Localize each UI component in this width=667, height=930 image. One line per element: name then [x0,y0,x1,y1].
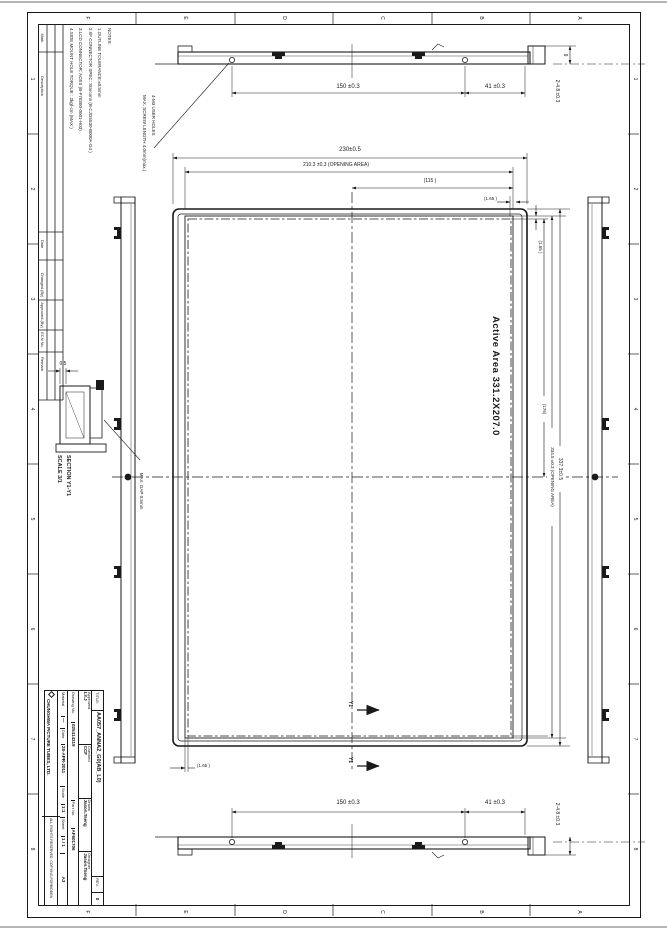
dim-top-48: 2-4.8 ±0.3 [552,68,562,114]
z-b4: B [476,907,486,917]
drawing-no-value: 025414319 [71,723,76,801]
dim-115: (115 ) [400,179,460,185]
z-b0: F [82,907,92,917]
z-t0: F [82,13,92,23]
approved-value: LY.J [83,692,88,743]
dim-165-bottom: (1.65 ) [197,763,231,768]
engineering-drawing-page: F E D C B A F E D C B A 1 2 3 4 5 6 7 8 … [0,0,667,930]
notes-line: 4.SIDE MOUNT HOLE TORQUE : 2kgf-cm (MAX.… [66,28,76,176]
revision-header-mark: Mark [37,28,47,48]
section-scale: SCALE 3/1 [54,455,63,521]
drawing-no-label: Drawing No. [71,691,75,723]
z-b2: D [279,907,289,917]
part-no-value: AF601706 [71,829,76,906]
title-label: TITLE: [92,691,103,711]
copyright-text: ALL RIGHTS RESERVED, COPYING FORBIDDEN [49,817,53,905]
z-r0: 1 [630,74,640,84]
z-b5: A [574,907,584,917]
z-l1: 2 [27,184,37,194]
rev-label: REV. [92,877,103,893]
user-holes-note: 4-M3 USER HOLES MAX. SCREW LENGTH 4.0mm(… [140,95,158,213]
drawing-title: AA057_ANNA2_G0(AB_L0) [92,711,103,877]
checked-value: CCF [83,746,88,797]
notes-line: 3.LCD CONNECTOR: ACES (B-F70300-0001-H03… [76,28,86,176]
section-cut-label-upper: Y1 [345,698,355,710]
dim-bottom-48: 2-4.8 ±0.3 [552,791,562,837]
dim-top-9: 9 [560,49,570,61]
z-b1: E [180,907,190,917]
sheet-label: Sheet [61,818,65,837]
dim-outer-height: 337.3±0.5 [555,446,565,492]
left-side-view [114,197,135,763]
date-value: 28-APR-2011 [60,745,65,787]
z-r1: 2 [630,184,640,194]
section-title: SECTION Y1-Y1 [63,455,72,521]
z-r6: 7 [630,734,640,744]
dim-bottom-41: 41 ±0.3 [465,800,525,807]
z-r2: 3 [630,294,640,304]
z-t3: C [377,13,387,23]
scale-label: Scale [61,787,65,805]
right-side-view [588,197,609,763]
z-r3: 4 [630,404,640,414]
dim-outer-width: 230±0.5 [273,147,427,154]
z-t2: D [279,13,289,23]
user-holes-note-line1: 4-M3 USER HOLES [149,95,158,213]
z-b3: C [377,907,387,917]
user-holes-note-line2: MAX. SCREW LENGTH 4.0mm(max.) [140,95,149,213]
z-r7: 8 [630,844,640,854]
dim-opening-width: 210.3 ±0.3 (OPENING AREA) [271,163,401,169]
revision-header-description: Description [37,68,47,104]
material-label: Material [61,691,65,717]
z-t5: A [574,13,584,23]
z-l0: 1 [27,74,37,84]
material-value: — [60,717,65,729]
dim-section-05: 0.5 [52,362,74,368]
z-l7: 8 [27,844,37,854]
drawn-value: Jason.Tseng [83,800,88,851]
dim-top-150: 150 ±0.3 [288,84,408,91]
section-title-block: SECTION Y1-Y1 SCALE 3/1 [54,455,72,521]
company-name: CHUNGHWA PICTURE TUBES, LTD. [46,699,51,776]
section-cut-label-lower: Y1 [345,754,355,766]
sheet-value: 1 / 1 [60,837,65,854]
z-t4: B [476,13,486,23]
rev-value: 0 [92,893,103,905]
section-detail-view [48,368,140,460]
top-side-view [154,44,645,148]
z-l6: 7 [27,734,37,744]
dim-165-top: (1.65 ) [467,196,497,201]
dim-165-right: (1.65 ) [535,232,545,262]
dim-top-41: 41 ±0.3 [465,84,525,91]
notes-block: NOTES: 1.OUTLINE TOLERANCE:±0.5mm 2.I/F … [66,28,114,176]
active-area-label: Active Area 331.2X207.0 [490,226,500,526]
z-r4: 5 [630,514,640,524]
bottom-side-view [155,808,645,858]
sheet-size: A3 [60,854,65,905]
company-logo-icon [48,691,55,698]
part-no-label: Part No. [71,801,75,829]
z-t1: E [180,13,190,23]
date-label: Date [61,729,65,745]
notes-line: 1.OUTLINE TOLERANCE:±0.5mm [95,28,105,176]
section-gap-note: MAX. GAP 0.5mm [136,460,146,522]
scale-value: 1:1 [60,805,65,818]
dim-bottom-150: 150 ±0.3 [288,800,408,807]
z-l4: 5 [27,514,37,524]
notes-line: NOTES: [104,28,114,176]
designer-value: Jason.Tseng [83,853,88,904]
revision-header-date: Date [37,235,47,253]
z-l3: 4 [27,404,37,414]
title-block: TITLE: AA057_ANNA2_G0(AB_L0) REV. 0 Appr… [44,690,104,906]
z-l2: 3 [27,294,37,304]
revision-header-remark: Remark [37,350,47,378]
dim-176: (176) [539,396,549,422]
z-r5: 6 [630,624,640,634]
z-l5: 6 [27,624,37,634]
notes-line: 2.I/F CONNECTOR SPEC: Starconn (B-CJG553… [85,28,95,176]
